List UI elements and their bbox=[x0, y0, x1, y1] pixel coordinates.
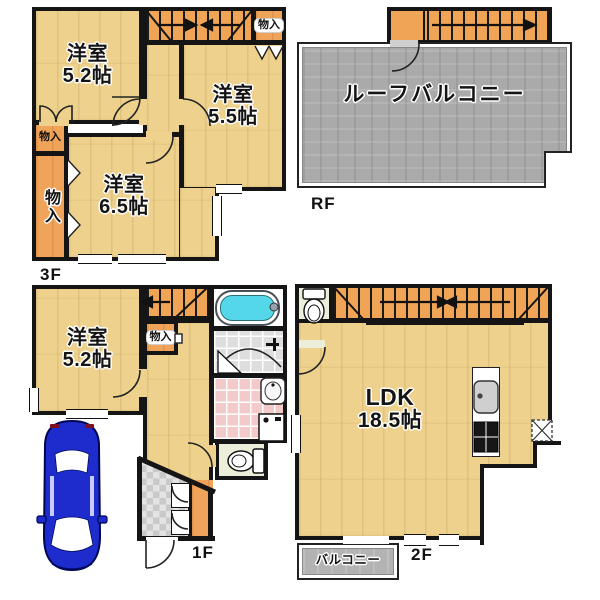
door-gap bbox=[146, 131, 172, 140]
car-taillight bbox=[85, 424, 94, 428]
window bbox=[78, 254, 112, 264]
room-name: 洋室 bbox=[99, 175, 149, 197]
floor-label-2f: 2F bbox=[411, 545, 433, 565]
closet-3f-left-small: 物入 bbox=[32, 121, 68, 155]
front-door-arc bbox=[146, 540, 174, 568]
car-side-window bbox=[90, 476, 94, 516]
roof-balcony-label: ルーフバルコニー bbox=[343, 83, 525, 106]
room-size: 18.5帖 bbox=[330, 410, 450, 433]
car-taillight bbox=[50, 424, 59, 428]
wall bbox=[137, 457, 142, 541]
room-name: LDK bbox=[330, 385, 450, 410]
room-3f-yoshitsu-65: 洋室 6.5帖 bbox=[65, 133, 183, 261]
car-top-view-icon bbox=[37, 421, 107, 570]
stairs-rf bbox=[387, 7, 552, 44]
door-gap bbox=[390, 40, 418, 47]
window bbox=[404, 534, 426, 546]
bathtub-water bbox=[220, 295, 275, 321]
bathtub bbox=[215, 290, 280, 326]
window bbox=[212, 196, 222, 236]
ldk-step-cut bbox=[480, 464, 537, 545]
ldk-label-wrap: LDK 18.5帖 bbox=[330, 385, 450, 433]
floor-label-rf: RF bbox=[311, 194, 336, 214]
car-body bbox=[44, 421, 100, 570]
stairs-2f bbox=[330, 284, 552, 322]
room-3f-yoshitsu-55: 洋室 5.5帖 bbox=[180, 41, 286, 191]
wall bbox=[208, 490, 213, 541]
roof-balcony-notch bbox=[544, 151, 572, 188]
roof-balcony-floor bbox=[302, 47, 567, 183]
window bbox=[29, 388, 39, 412]
ldk-step-cut bbox=[533, 441, 561, 545]
wall bbox=[366, 318, 524, 325]
floorplan: 洋室 5.2帖 物入 洋室 5.5帖 物入 物入 洋室 6.5帖 3F bbox=[0, 0, 600, 600]
room-name: 洋室 bbox=[63, 328, 113, 350]
car-rear-window bbox=[55, 450, 89, 473]
room-size: 6.5帖 bbox=[99, 197, 149, 219]
car-windshield bbox=[51, 517, 93, 552]
toilet-room-1f bbox=[215, 440, 268, 480]
window bbox=[291, 415, 301, 453]
room-name: 洋室 bbox=[208, 85, 258, 107]
closet-3f-top-right: 物入 bbox=[252, 7, 286, 44]
room-size: 5.2帖 bbox=[63, 350, 113, 372]
door-gap bbox=[39, 119, 69, 126]
stair-landing bbox=[391, 11, 425, 40]
wall bbox=[143, 317, 212, 323]
room-name: 洋室 bbox=[63, 44, 113, 66]
closet-label: 物入 bbox=[254, 18, 284, 34]
front-door-gap bbox=[146, 537, 178, 543]
hallway-3f bbox=[143, 41, 183, 136]
car-bumper bbox=[52, 564, 92, 569]
powder-room-1f bbox=[210, 374, 287, 443]
closet-1f: 物入 bbox=[143, 320, 178, 355]
roof-balcony-label-wrap: ルーフバルコニー bbox=[297, 84, 572, 107]
stairs-3f bbox=[143, 7, 255, 44]
closet-3f-left-tall: 物入 bbox=[32, 152, 68, 261]
window bbox=[66, 409, 108, 419]
window bbox=[118, 254, 166, 264]
car-mirror bbox=[37, 516, 46, 523]
balcony-label-wrap: バルコニー bbox=[297, 551, 399, 569]
room-size: 5.5帖 bbox=[208, 107, 258, 129]
room-size: 5.2帖 bbox=[63, 66, 113, 88]
door-gap bbox=[179, 99, 187, 125]
floor-label-3f: 3F bbox=[40, 265, 62, 285]
window bbox=[439, 534, 459, 546]
door-gap bbox=[139, 99, 147, 125]
closet-label: 物入 bbox=[146, 330, 176, 346]
window bbox=[216, 184, 242, 194]
closet-label: 物入 bbox=[36, 131, 64, 145]
car-side-window bbox=[50, 476, 54, 516]
stairs-1f bbox=[143, 285, 212, 320]
car-mirror bbox=[98, 516, 107, 523]
door-gap bbox=[299, 340, 325, 348]
closet-door bbox=[171, 483, 190, 508]
room-1f-yoshitsu-52: 洋室 5.2帖 bbox=[32, 285, 143, 415]
door-gap bbox=[139, 369, 147, 397]
kitchen-counter bbox=[472, 367, 500, 457]
floor-label-1f: 1F bbox=[192, 543, 214, 563]
roof-balcony bbox=[297, 42, 572, 188]
closet-door bbox=[171, 510, 190, 535]
room-3f-yoshitsu-52: 洋室 5.2帖 bbox=[32, 7, 143, 124]
balcony-label: バルコニー bbox=[316, 553, 381, 567]
door-gap bbox=[209, 445, 216, 467]
balcony-door-gap bbox=[343, 536, 389, 544]
closet-label: 物入 bbox=[38, 189, 62, 225]
washplace-1f bbox=[210, 327, 287, 377]
